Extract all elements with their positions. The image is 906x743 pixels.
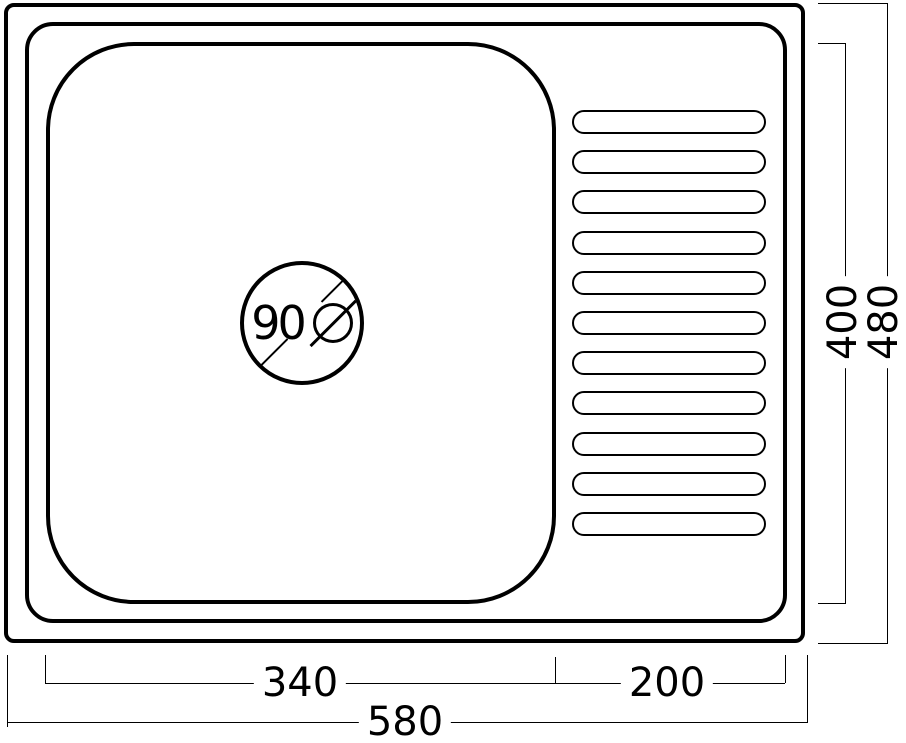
drain-hole: 90 <box>240 261 364 385</box>
drainboard-rib <box>572 311 766 335</box>
dim-label-drainboard-width: 200 <box>621 662 713 704</box>
drain-size-label: 90 <box>251 300 353 346</box>
dim-label-bowl-depth: 400 <box>822 276 864 368</box>
ext-line-bowl-depth-bottom <box>818 603 846 605</box>
drainboard-rib <box>572 512 766 536</box>
ext-line-overall-right <box>807 655 809 723</box>
drainboard-ribs <box>572 110 766 536</box>
drainboard-rib <box>572 391 766 415</box>
drainboard-rib <box>572 432 766 456</box>
ext-line-overall-depth-top <box>818 3 888 5</box>
ext-line-drainboard-right <box>785 655 787 683</box>
ext-line-bowl-left <box>45 655 47 683</box>
ext-line-bowl-drainboard <box>555 657 557 683</box>
drainboard-rib <box>572 231 766 255</box>
diameter-symbol-icon <box>313 303 353 343</box>
sink-technical-drawing: 90 340 200 580 400 480 <box>0 0 906 743</box>
ext-line-overall-left <box>7 655 9 727</box>
drainboard-rib <box>572 110 766 134</box>
drainboard-rib <box>572 190 766 214</box>
drainboard-rib <box>572 271 766 295</box>
dim-label-overall-depth: 480 <box>863 276 905 368</box>
drainboard-rib <box>572 150 766 174</box>
dim-label-overall-width: 580 <box>359 701 451 743</box>
drainboard-rib <box>572 472 766 496</box>
ext-line-bowl-depth-top <box>818 43 846 45</box>
dim-label-bowl-width: 340 <box>254 662 346 704</box>
drainboard-rib <box>572 351 766 375</box>
drain-diameter-value: 90 <box>251 300 307 346</box>
ext-line-overall-depth-bottom <box>818 643 888 645</box>
